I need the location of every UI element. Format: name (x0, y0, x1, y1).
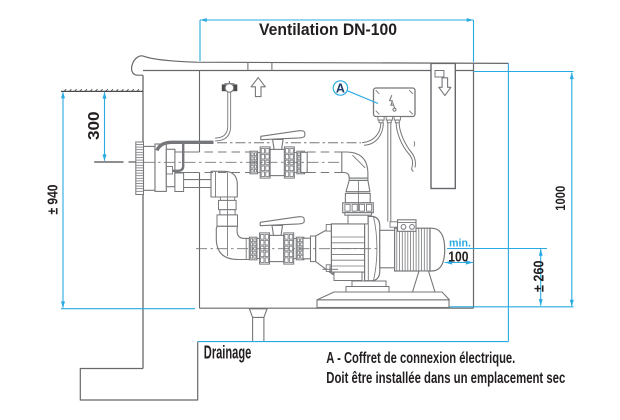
svg-text:A - Coffret de connexion élect: A - Coffret de connexion électrique. (326, 350, 515, 367)
svg-text:100: 100 (448, 248, 468, 265)
svg-text:Drainage: Drainage (204, 342, 252, 362)
svg-text:Doit être installée dans un em: Doit être installée dans un emplacement … (326, 370, 565, 387)
svg-text:A: A (336, 82, 345, 96)
svg-text:± 260: ± 260 (531, 261, 548, 293)
svg-text:Ventilation DN-100: Ventilation DN-100 (259, 21, 397, 39)
svg-text:300: 300 (86, 111, 103, 140)
svg-text:1000: 1000 (552, 186, 568, 211)
svg-text:± 940: ± 940 (45, 185, 62, 215)
